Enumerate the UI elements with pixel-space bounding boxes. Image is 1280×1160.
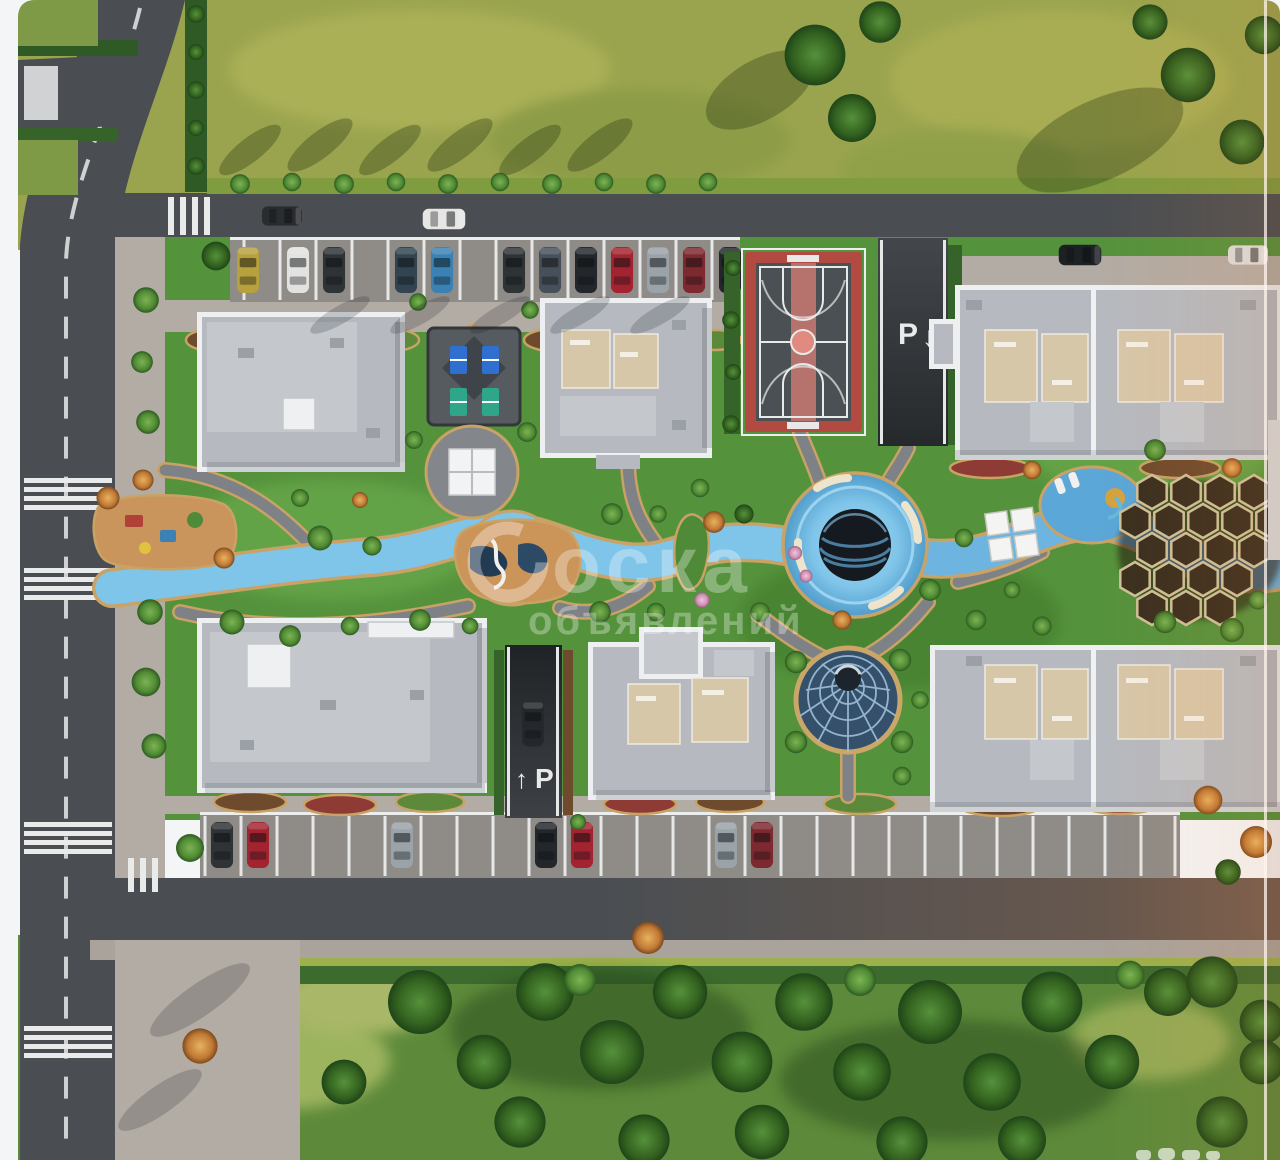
pool-plaza [783, 473, 927, 617]
basketball-court [742, 249, 865, 435]
table-tennis-court [428, 328, 520, 425]
site-plan-scene: P ↓ ↑ P [0, 0, 1280, 1160]
watermark-line2: объявлений [528, 599, 804, 643]
building-bottom-left [197, 618, 487, 793]
garage-ramp-bottom: ↑ P [494, 645, 573, 818]
up-arrow-icon: ↑ [515, 764, 528, 794]
warm-tint [1100, 0, 1280, 1160]
parking-letter: P [898, 318, 918, 351]
parking-row-bottom [176, 812, 1180, 878]
glass-dome [796, 648, 900, 752]
watermark-line1: оска [552, 520, 753, 609]
building-bottom-center [588, 628, 775, 800]
aerial-render-image: P ↓ ↑ P [0, 0, 1280, 1160]
building-top-left [197, 312, 405, 472]
parking-letter: P [535, 763, 554, 794]
court-hedge [724, 252, 740, 434]
crosswalk-bottom-road [128, 858, 158, 892]
parking-row-top [230, 237, 741, 302]
canopy-plaza [426, 426, 518, 518]
bush [176, 834, 204, 862]
